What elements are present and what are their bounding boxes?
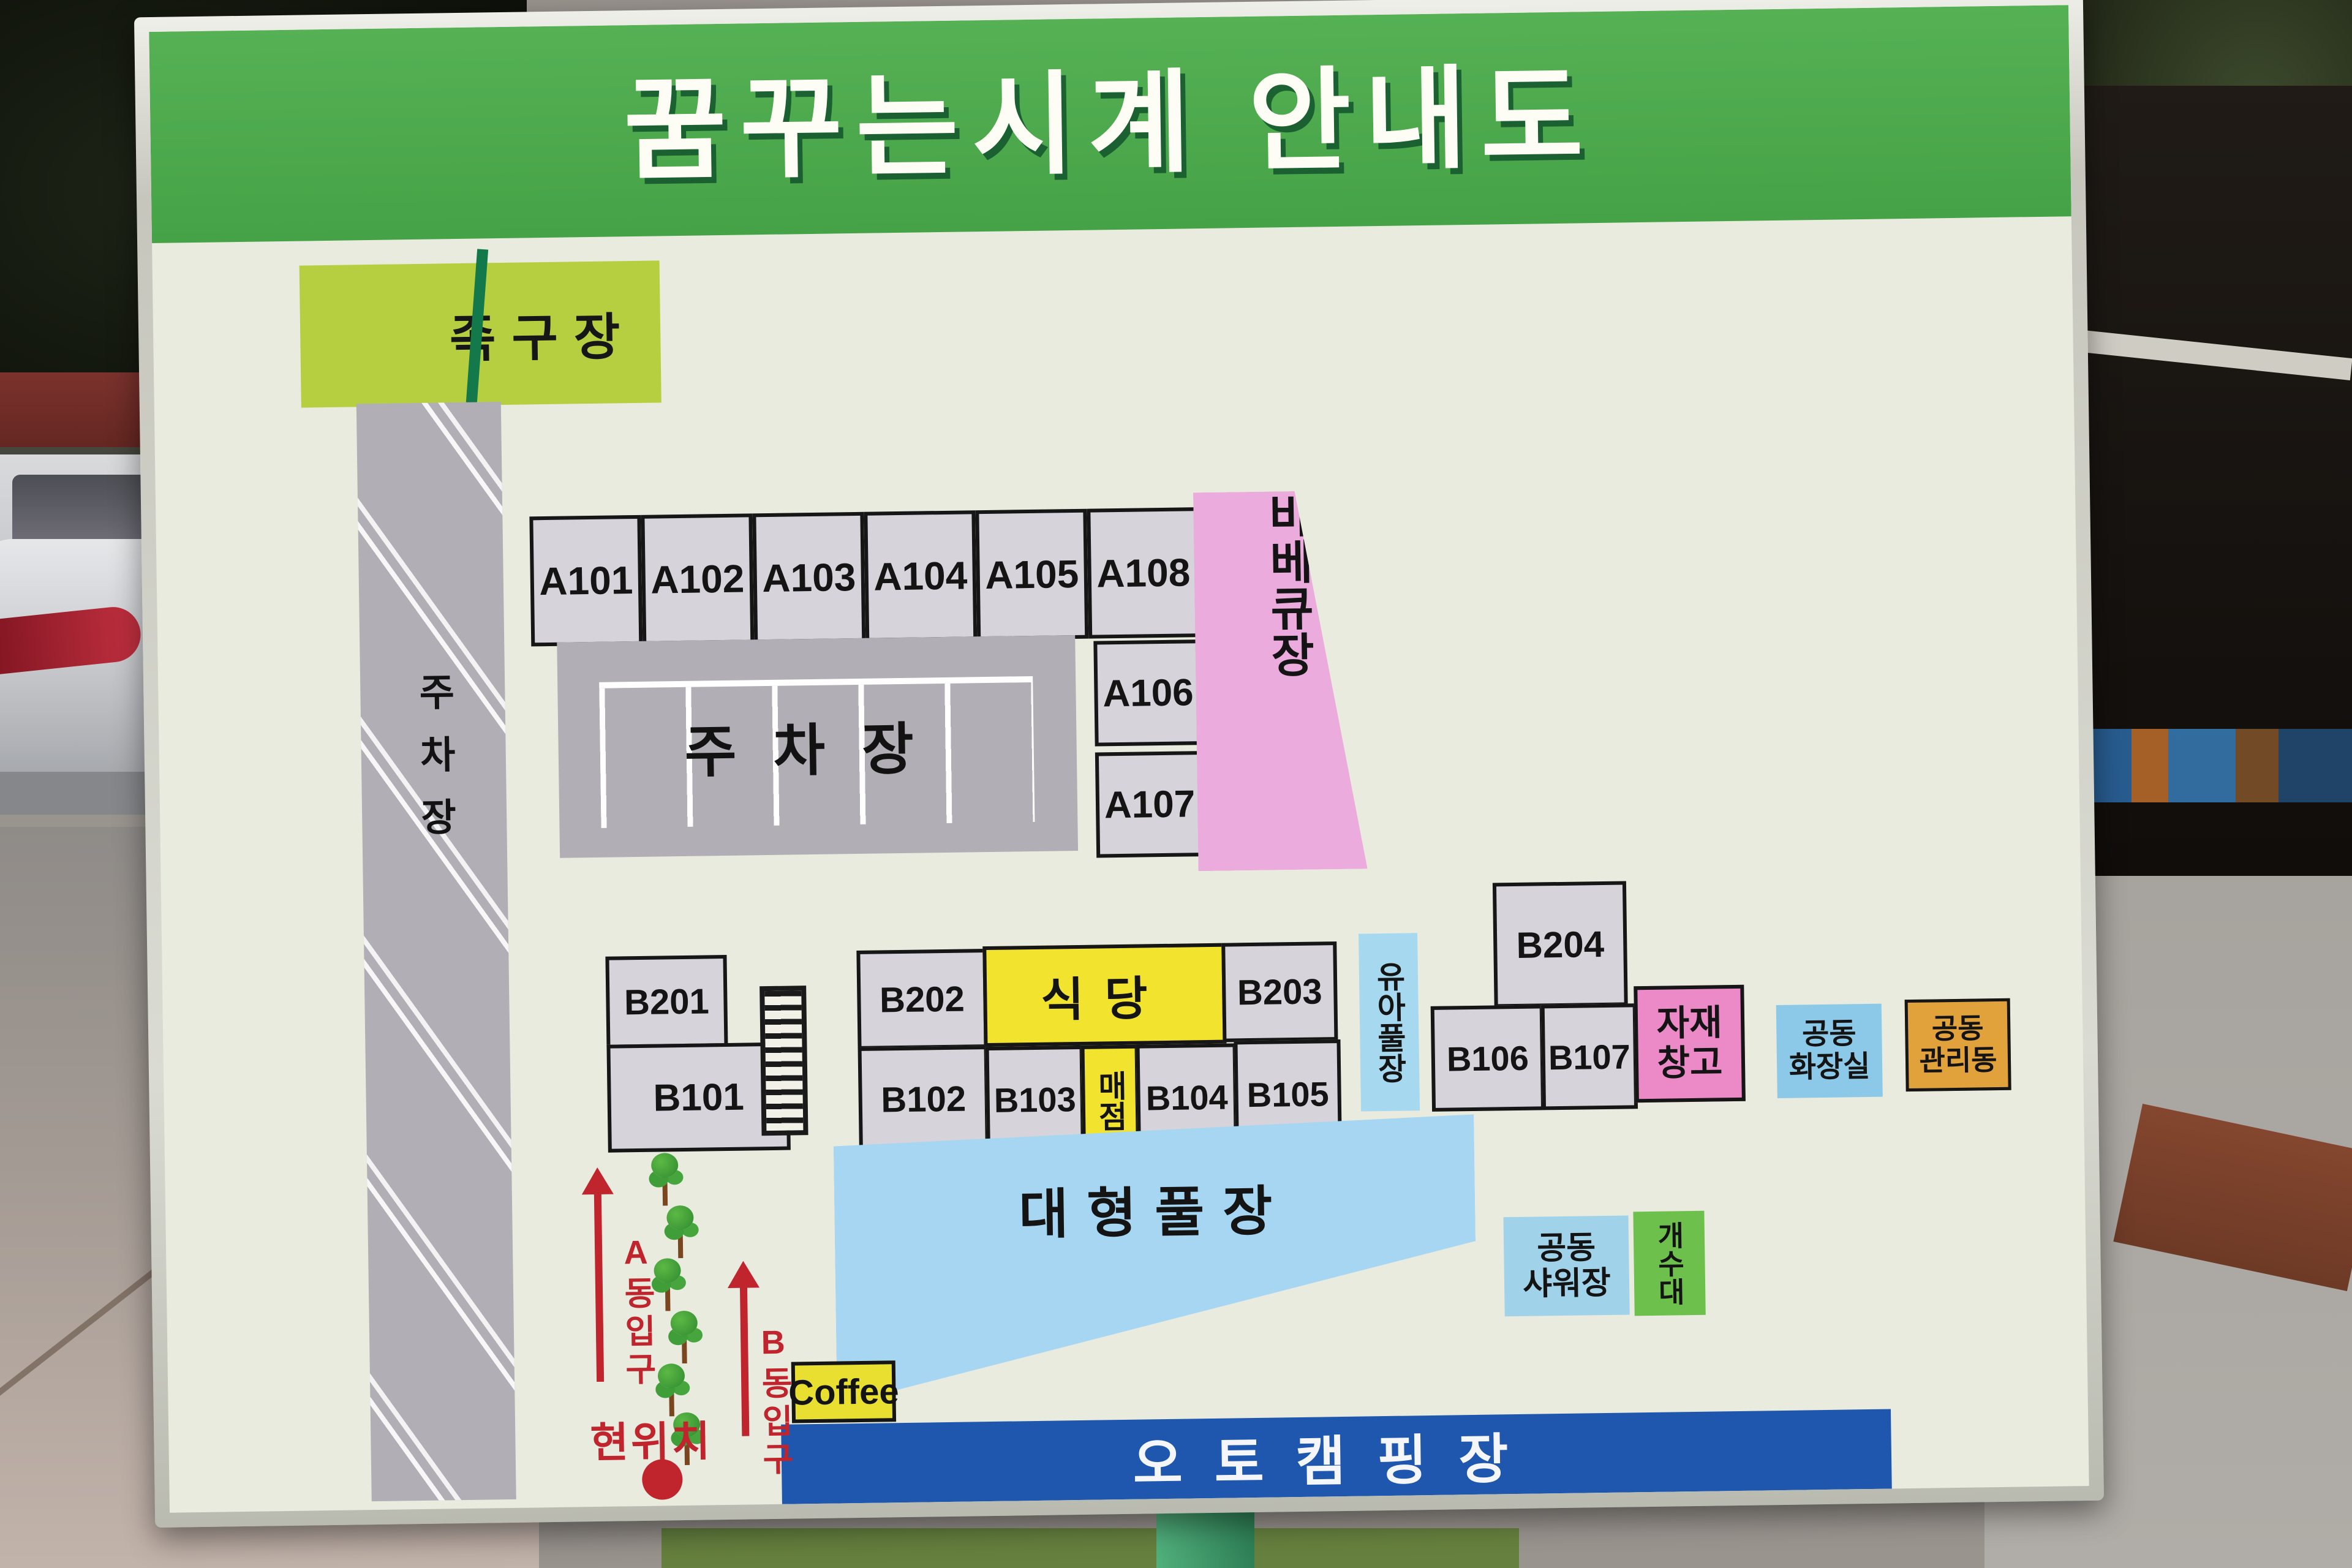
zone-infant-pool: 유아풀장 xyxy=(1359,933,1420,1111)
sign-title: 꿈꾸는시계 안내도 xyxy=(149,5,2071,243)
photo-stage: 꿈꾸는시계 안내도 족구장 주차장 A101 A102 A103 A104 A1… xyxy=(0,0,2352,1568)
zone-shared-admin: 공동 관리동 xyxy=(1905,998,2011,1091)
zone-bbq: 바베큐장 xyxy=(1193,490,1368,871)
large-pool-label: 대형풀장 xyxy=(834,1165,1476,1252)
zone-shared-shower: 공동 샤워장 xyxy=(1504,1215,1630,1316)
map-panel: 꿈꾸는시계 안내도 족구장 주차장 A101 A102 A103 A104 A1… xyxy=(149,5,2089,1513)
entrance-a-arrow-icon xyxy=(594,1191,604,1382)
cabin-a104: A104 xyxy=(864,510,977,642)
pavilion-stored-items xyxy=(2076,729,2352,802)
entrance-b-label: B동입구 xyxy=(749,1324,800,1480)
cabin-a103: A103 xyxy=(752,512,865,644)
cabin-b106: B106 xyxy=(1431,1005,1545,1112)
cabin-b202: B202 xyxy=(856,949,987,1050)
cabin-b107: B107 xyxy=(1541,1003,1638,1110)
sign-header: 꿈꾸는시계 안내도 xyxy=(149,5,2071,243)
cabin-b201: B201 xyxy=(605,955,728,1049)
tree-icon xyxy=(667,1311,702,1364)
tree-icon xyxy=(663,1205,698,1259)
road-hatch-marks xyxy=(356,402,516,1501)
zone-sink-station: 개수대 xyxy=(1633,1211,1705,1316)
current-location-label: 현위치 xyxy=(590,1407,713,1469)
parking-lot-label: 주차장 xyxy=(558,701,1077,790)
cabin-a106: A106 xyxy=(1093,639,1202,746)
zone-coffee: Coffee xyxy=(791,1360,896,1423)
cabin-a102: A102 xyxy=(641,513,754,645)
entrance-b-arrow-icon xyxy=(740,1284,749,1436)
stairs-icon xyxy=(759,986,808,1136)
tree-icon xyxy=(650,1258,685,1311)
cabin-b203: B203 xyxy=(1221,941,1338,1042)
cabin-a108: A108 xyxy=(1087,507,1200,639)
cabin-b102: B102 xyxy=(858,1046,989,1153)
zone-restaurant: 식당 xyxy=(982,943,1226,1047)
zone-large-pool: 대형풀장 xyxy=(833,1109,1477,1406)
zone-materials-storage: 자재 창고 xyxy=(1634,985,1746,1102)
road-strip: 주차장 xyxy=(356,402,516,1501)
current-location-dot xyxy=(642,1459,683,1500)
zone-parking-lot: 주차장 xyxy=(557,635,1078,858)
cabin-a101: A101 xyxy=(529,515,643,647)
road-parking-label: 주차장 xyxy=(405,672,462,860)
cabin-a105: A105 xyxy=(975,509,1088,641)
tree-icon xyxy=(647,1153,682,1206)
zone-shared-toilet: 공동 화장실 xyxy=(1776,1004,1883,1098)
zone-auto-camping: 오토캠핑장 xyxy=(781,1409,1892,1504)
sign-frame: 꿈꾸는시계 안내도 족구장 주차장 A101 A102 A103 A104 A1… xyxy=(134,0,2104,1528)
cabin-b204: B204 xyxy=(1493,881,1628,1008)
grass-patch xyxy=(661,1528,1519,1568)
cabin-a107: A107 xyxy=(1095,751,1204,858)
